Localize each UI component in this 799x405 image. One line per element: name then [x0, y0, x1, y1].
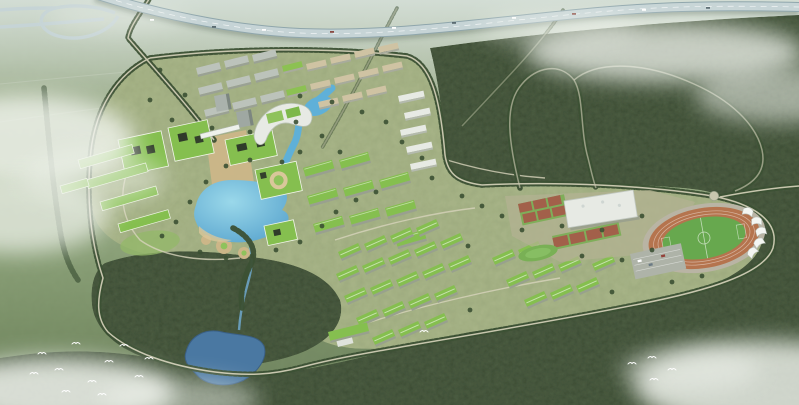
- rendering-canvas: [0, 0, 799, 405]
- ramp-west-a: [0, 8, 56, 10]
- road-junction-circle: [709, 191, 718, 200]
- aerial-rendering: [0, 0, 799, 405]
- building-tower: [214, 93, 232, 111]
